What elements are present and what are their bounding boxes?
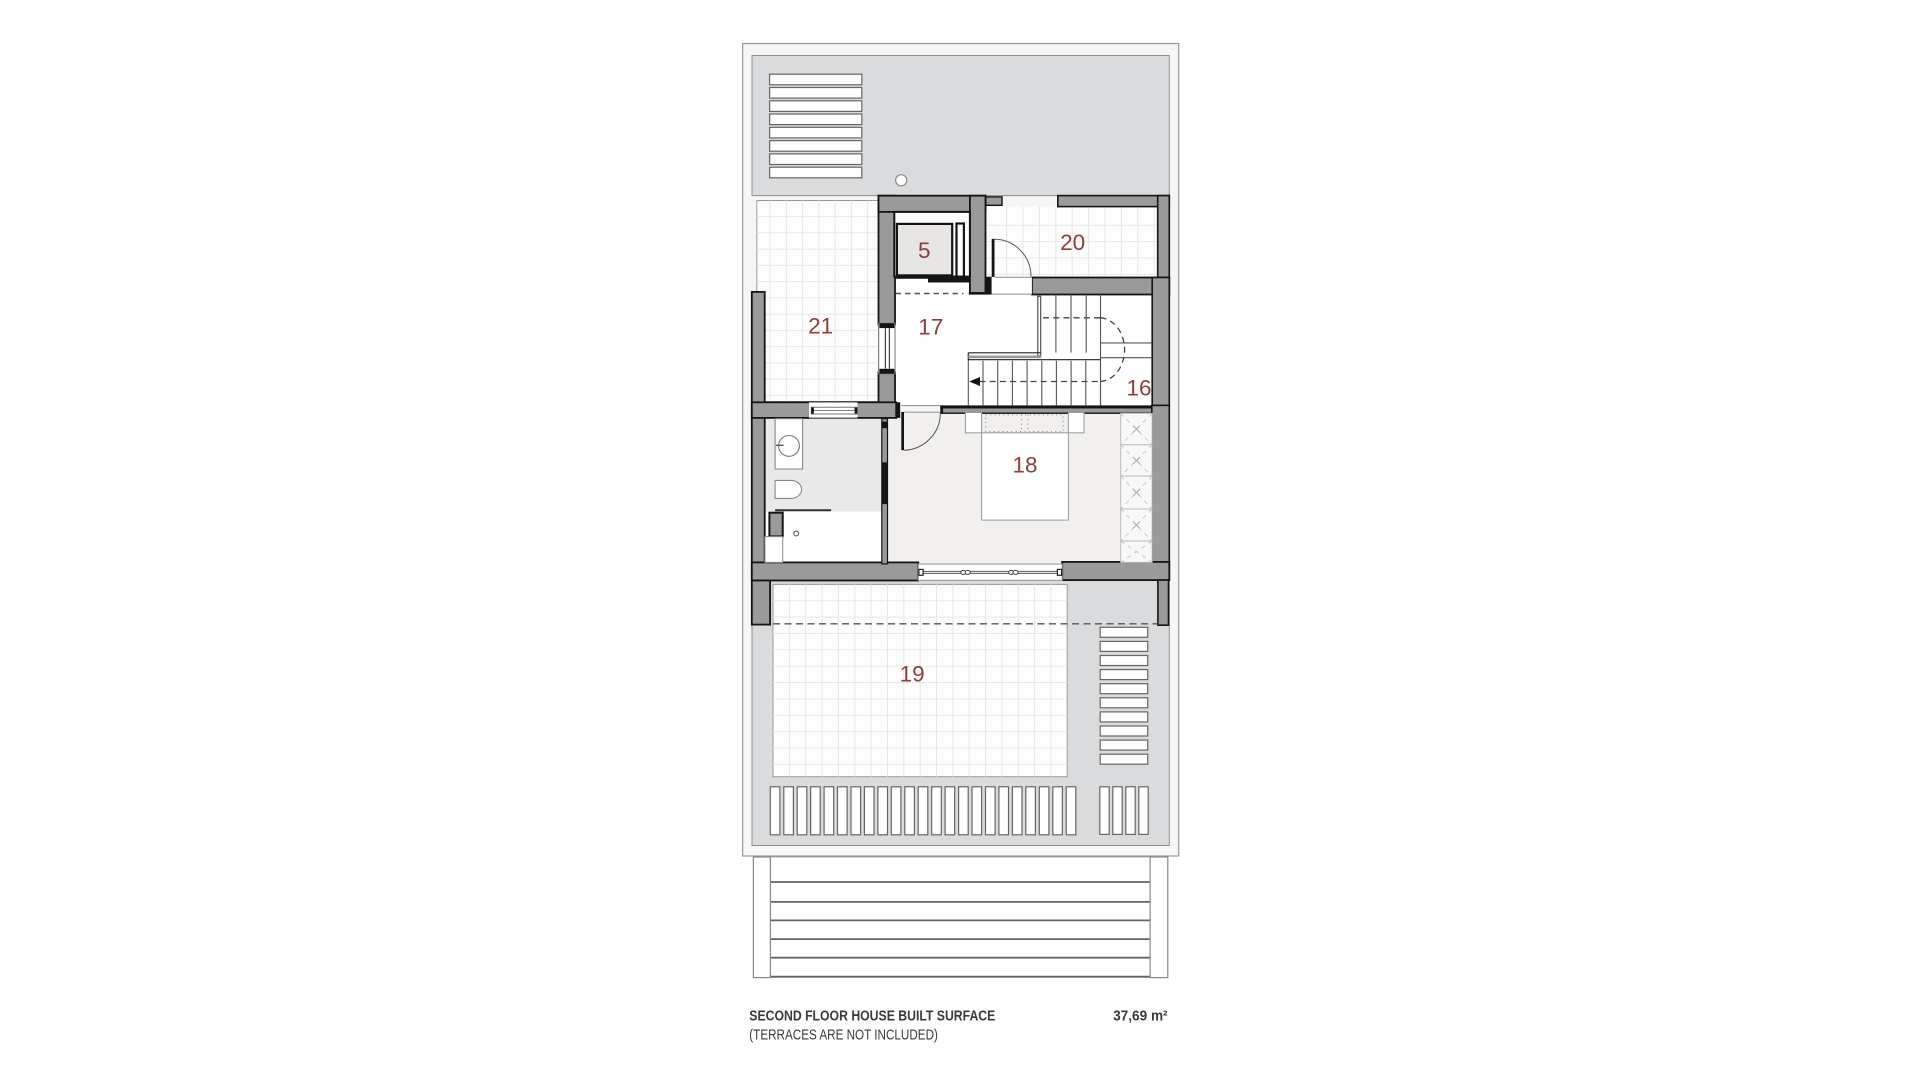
svg-text:21: 21 xyxy=(808,314,833,339)
svg-text:16: 16 xyxy=(1126,376,1151,401)
svg-text:19: 19 xyxy=(900,661,925,686)
svg-text:20: 20 xyxy=(1060,230,1085,255)
svg-text:18: 18 xyxy=(1012,453,1037,478)
svg-text:37,69 m²: 37,69 m² xyxy=(1113,1009,1168,1025)
svg-text:17: 17 xyxy=(918,315,943,340)
svg-text:(TERRACES ARE NOT INCLUDED): (TERRACES ARE NOT INCLUDED) xyxy=(749,1027,938,1043)
svg-text:SECOND FLOOR HOUSE BUILT SURFA: SECOND FLOOR HOUSE BUILT SURFACE xyxy=(749,1009,995,1025)
svg-text:5: 5 xyxy=(918,238,931,263)
